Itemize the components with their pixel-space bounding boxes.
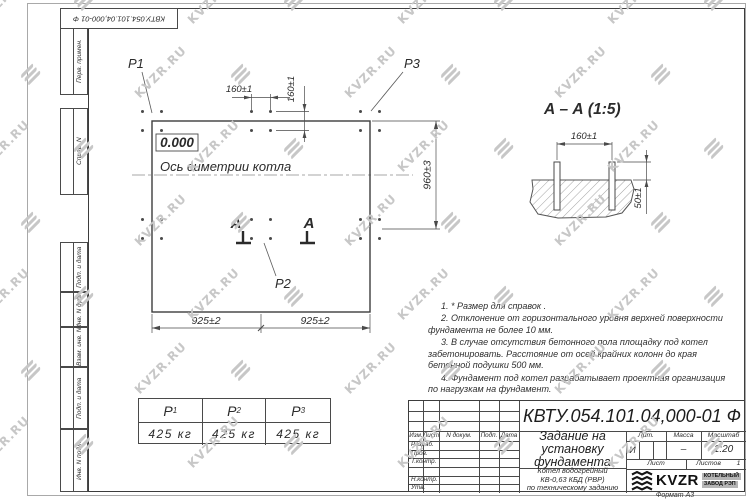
load-table-value-p2: 425 кг [203, 423, 267, 445]
tb-row-tkontr: Т.контр. [409, 458, 439, 467]
tb-sheets-value: 1 [731, 459, 746, 469]
concrete-pad [530, 180, 634, 218]
kvzr-logo: KVZR КОТЕЛЬНЫЙ ЗАВОД РЭП [627, 469, 745, 492]
document-subtitle: Котел водогрейный КВ-0,63 КБД (РВР) по т… [519, 468, 626, 492]
tb-header-ndocum: N докум. [439, 431, 479, 441]
dim-925-left-label: 925±2 [191, 315, 220, 327]
tb-mass-header: Масса [666, 431, 701, 441]
section-title: А – А (1:5) [543, 101, 621, 118]
margin-box-vzam-inv: Взам. инв. N [60, 327, 88, 367]
dim-160h-label: 160±1 [226, 84, 252, 95]
load-point-p1-label: P1 [128, 56, 144, 71]
note-2: 2. Отклонение от горизонтального уровня … [428, 313, 729, 336]
note-4: 4. Фундамент под котел разрабатывает про… [428, 373, 729, 396]
load-table-value-p1: 425 кг [139, 423, 203, 445]
kvzr-brand-tagline: КОТЕЛЬНЫЙ ЗАВОД РЭП [702, 473, 741, 489]
anchor-bolt-right [609, 162, 615, 210]
dim-160h-lines [232, 94, 290, 110]
tb-header-data: Дата [499, 431, 519, 441]
technical-notes: 1. * Размер для справок . 2. Отклонение … [428, 301, 729, 396]
tb-sheet-label: Лист [626, 459, 686, 469]
tb-header-izm: Изм. [409, 431, 423, 441]
load-point-p3-label: P3 [404, 56, 421, 71]
load-table-header-p2: Р2 [203, 399, 267, 423]
tb-row-razrab: Разраб. [409, 441, 439, 450]
dim-925-lines [152, 314, 370, 333]
tb-scale-value: 1:20 [701, 441, 746, 459]
margin-box-podp-data-1: Подп. и дата [60, 242, 88, 292]
dim-925-right-label: 925±2 [300, 315, 329, 327]
foundation-plan-view: P1 P3 P2 0.000 Ось симетрии котла А А 92… [108, 40, 443, 340]
dim-160s-lines [557, 142, 612, 160]
margin-box-podp-data-2: Подп. и дата [60, 367, 88, 429]
section-mark-a-left: А [230, 215, 242, 232]
drawing-designation: КВТУ.054.101.04,000-01 Ф [520, 402, 744, 429]
margin-box-inv-dubl: Инв. N дубл. [60, 292, 88, 327]
drawing-sheet: КВТУ.054.101.04,000-01 Ф Перв. примен. С… [0, 0, 750, 500]
corner-designation-stamp: КВТУ.054.101.04,000-01 Ф [60, 8, 178, 29]
tb-lit-header: Лит. [626, 431, 666, 441]
section-cut-flags [236, 231, 315, 243]
tb-scale-header: Масштаб [701, 431, 746, 441]
section-mark-a-right: А [303, 215, 315, 232]
tb-row-nkontr: Н.контр. [409, 476, 439, 484]
dim-160s-label: 160±1 [571, 131, 597, 142]
load-point-p2-label: P2 [275, 276, 292, 291]
note-3: 3. В случае отсутствия бетонного пола пл… [428, 337, 729, 371]
dim-50-label: 50±1 [633, 187, 644, 208]
tb-sheets-label: Листов [686, 459, 731, 469]
title-block: Изм. Лист N докум. Подп. Дата Разраб. Пр… [408, 400, 745, 492]
margin-box-inv-podl: Инв. N подл. [60, 429, 88, 492]
corner-designation-text: КВТУ.054.101.04,000-01 Ф [73, 15, 165, 23]
document-title: Задание на установку фундамента [519, 432, 626, 467]
level-mark-value: 0.000 [160, 135, 194, 150]
anchor-bolt-left [554, 162, 560, 210]
load-table-value-p3: 425 кг [266, 423, 330, 445]
load-table-header-p1: Р1 [139, 399, 203, 423]
dim-160v-label: 160±1 [286, 76, 297, 102]
dim-960-label: 960±3 [422, 160, 434, 189]
kvzr-brand-name: KVZR [656, 473, 699, 488]
section-a-a-view: А – А (1:5) 160±1 50±1 [518, 92, 688, 222]
tb-row-utv: Утв. [409, 484, 439, 493]
point-leader-lines [142, 72, 403, 276]
format-label: Формат А3 [630, 492, 720, 499]
margin-box-perv-primen: Перв. примен. [60, 28, 88, 95]
tb-mass-value: – [666, 441, 701, 459]
boiler-axis-label: Ось симетрии котла [160, 159, 291, 174]
note-1: 1. * Размер для справок . [428, 301, 729, 312]
tb-header-list: Лист [423, 431, 439, 441]
kvzr-coil-icon [631, 471, 653, 491]
tb-header-podp: Подп. [479, 431, 499, 441]
tb-row-prov: Пров. [409, 450, 439, 458]
tb-lit-value: И [626, 441, 639, 459]
load-table-header-p3: Р3 [266, 399, 330, 423]
load-table: Р1 Р2 Р3 425 кг 425 кг 425 кг [138, 398, 331, 444]
margin-box-sprav-n: Справ. N [60, 108, 88, 195]
